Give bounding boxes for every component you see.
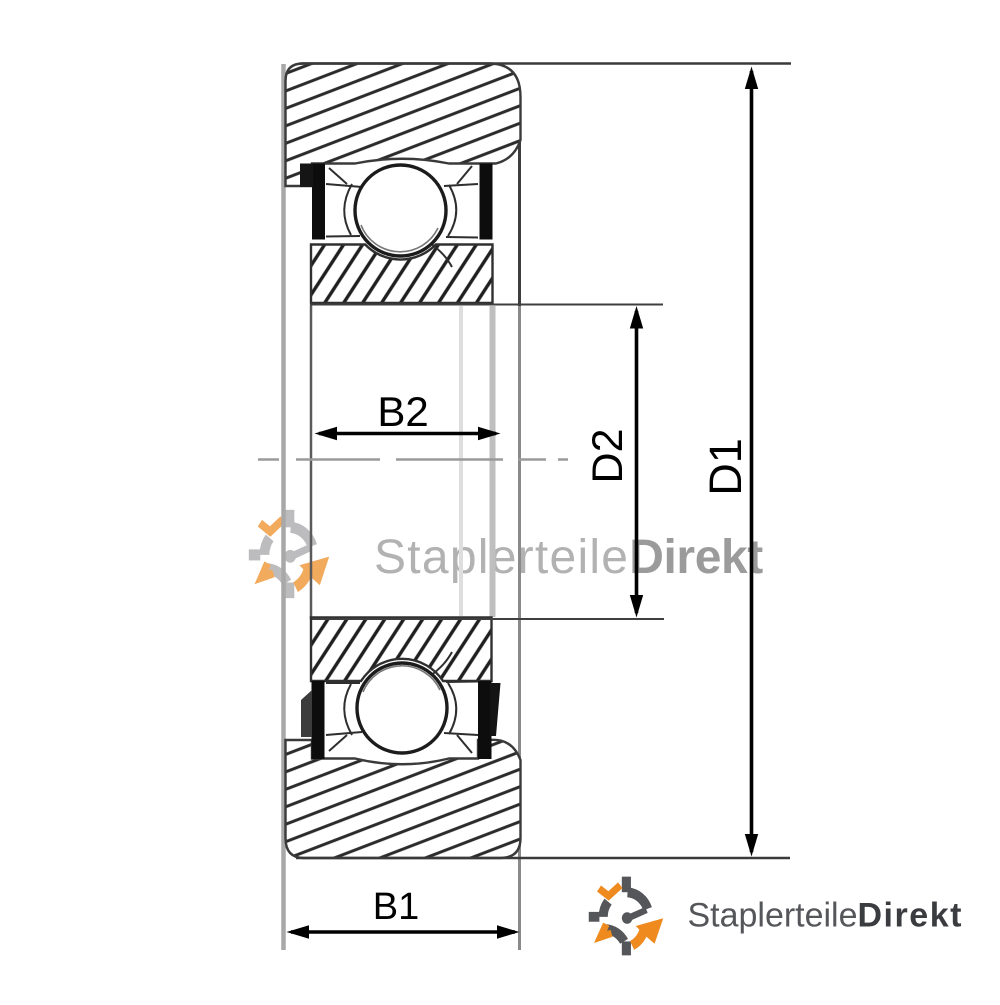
- svg-text:StaplerteileDirekt: StaplerteileDirekt: [374, 531, 763, 584]
- svg-text:D1: D1: [700, 438, 751, 496]
- svg-text:B1: B1: [373, 886, 419, 928]
- svg-text:D2: D2: [584, 429, 632, 484]
- svg-text:B2: B2: [377, 388, 428, 435]
- svg-text:StaplerteileDirekt: StaplerteileDirekt: [688, 897, 962, 935]
